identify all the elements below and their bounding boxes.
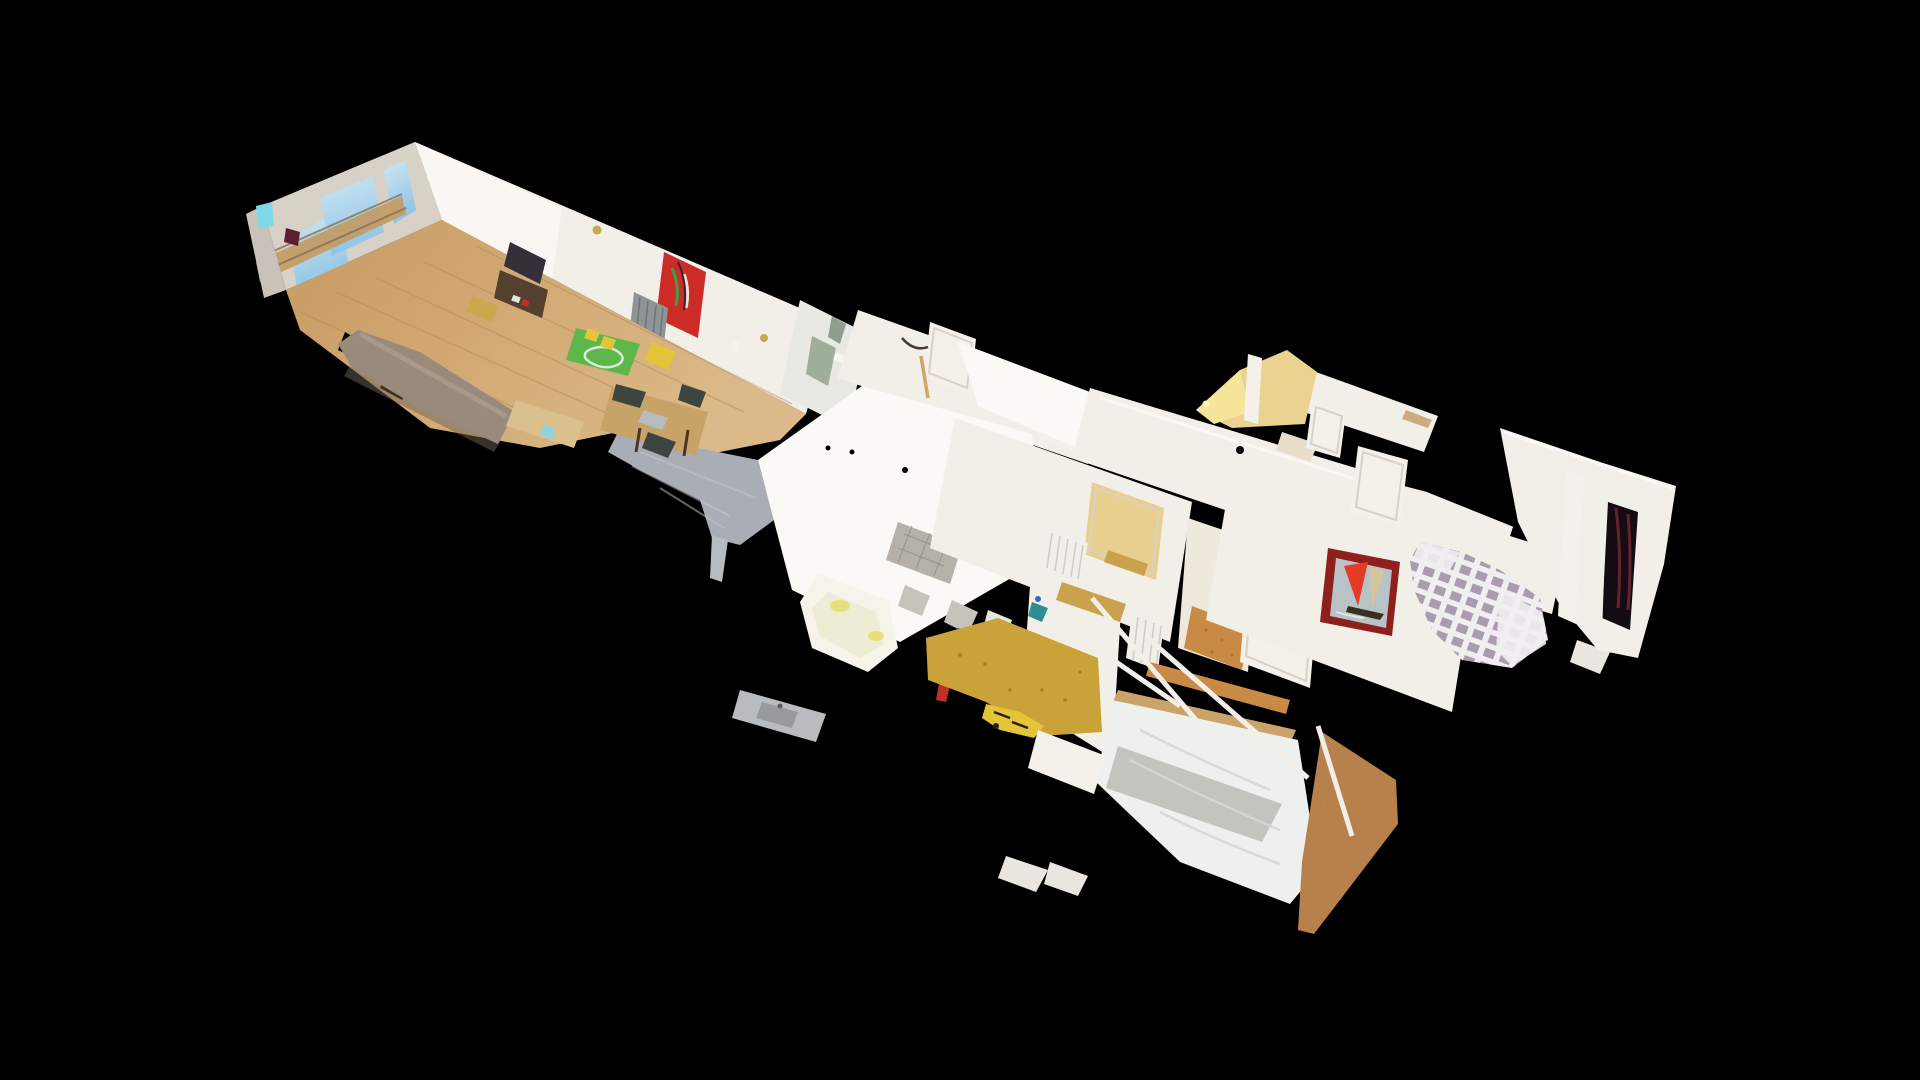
hall-door	[1306, 402, 1346, 458]
hall-door	[1350, 446, 1408, 526]
wall-sconce	[760, 334, 768, 342]
ceiling-light	[1203, 401, 1210, 408]
dollhouse-model	[0, 0, 1920, 1080]
wall-clock	[593, 226, 602, 235]
kitchen-counter	[732, 690, 826, 742]
scan-shard	[1044, 862, 1088, 896]
bedroom-floor-strip	[1298, 726, 1398, 934]
warm-lit-nook	[1196, 350, 1317, 428]
scan-fleck-cyan	[256, 202, 274, 228]
dollhouse-viewport[interactable]	[0, 0, 1920, 1080]
scan-shard	[998, 856, 1048, 892]
scan-strip-dangling	[710, 535, 728, 582]
sailboat-painting	[1320, 548, 1400, 636]
room-living	[246, 142, 832, 582]
